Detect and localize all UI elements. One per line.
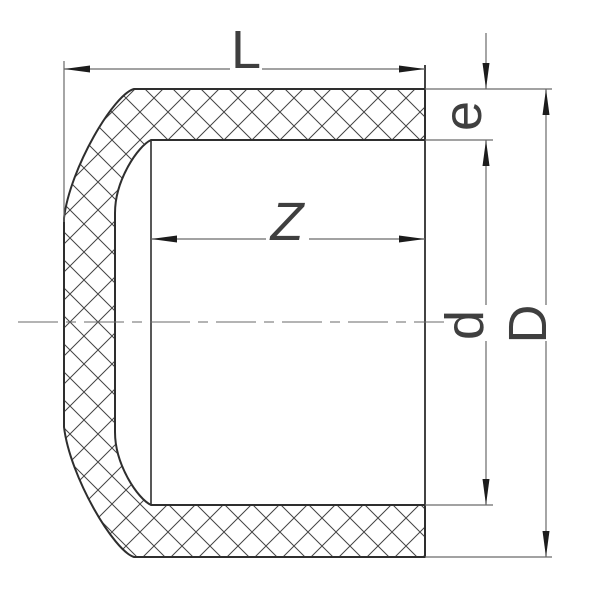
- dimension-Z-arrow-right: [399, 236, 425, 243]
- dimension-label-d: d: [435, 310, 495, 340]
- dimension-L-arrow-right: [399, 66, 425, 73]
- dimension-label-Z: Z: [269, 192, 306, 252]
- drawing-canvas: L Z e d D: [0, 0, 600, 600]
- pipe-cap-engineering-drawing: L Z e d D: [0, 0, 600, 600]
- dimension-d-arrow-up: [483, 140, 490, 166]
- dimension-Z-arrow-left: [151, 236, 177, 243]
- dimension-D-arrow-down: [543, 531, 550, 557]
- dimension-D-arrow-up: [543, 89, 550, 115]
- dimension-label-D: D: [498, 305, 558, 344]
- dimension-L-arrow-left: [64, 66, 90, 73]
- cap-section: [64, 65, 425, 557]
- dimension-label-e: e: [433, 101, 493, 131]
- cap-wall-hatched-area: [64, 89, 425, 557]
- dimension-e-arrow-down: [483, 63, 490, 89]
- dimension-d-arrow-down: [483, 479, 490, 505]
- dimension-label-L: L: [231, 20, 261, 80]
